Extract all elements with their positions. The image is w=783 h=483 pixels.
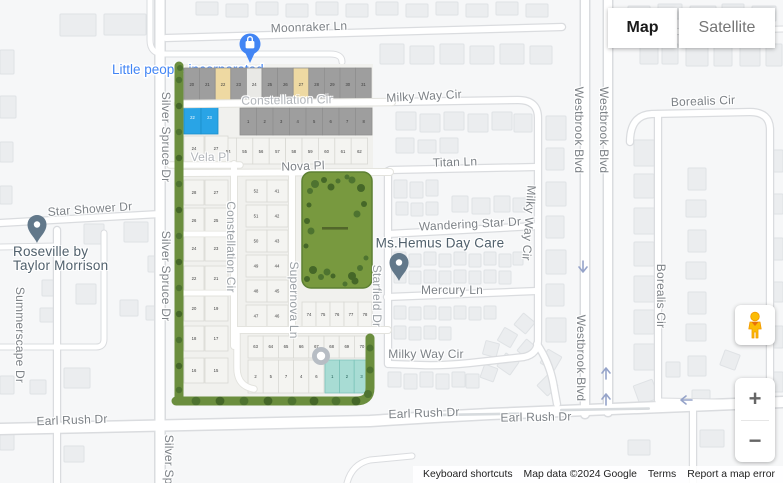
building xyxy=(396,138,414,153)
lot-number: 70 xyxy=(360,344,365,349)
building xyxy=(420,372,433,387)
tree-icon xyxy=(357,184,365,192)
building xyxy=(500,44,524,64)
building xyxy=(492,112,512,130)
building xyxy=(440,44,464,64)
building xyxy=(634,208,656,234)
building xyxy=(466,4,488,17)
building xyxy=(454,306,466,319)
tree-icon xyxy=(308,228,315,235)
tree-icon xyxy=(304,218,310,224)
tree-icon xyxy=(176,181,182,187)
building xyxy=(484,306,496,319)
lot-number: 24 xyxy=(192,146,197,151)
lot-number: 51 xyxy=(254,214,259,219)
lot-number: 25 xyxy=(214,218,219,223)
building xyxy=(396,202,408,215)
lot-number: 66 xyxy=(299,344,304,349)
building xyxy=(546,148,564,170)
lot-number: 64 xyxy=(268,344,273,349)
lot-number: 49 xyxy=(254,264,259,269)
tree-icon xyxy=(176,155,182,161)
tree-icon xyxy=(309,266,317,274)
building xyxy=(634,140,656,166)
building xyxy=(526,4,548,17)
lot-number: 61 xyxy=(341,149,346,154)
building xyxy=(499,271,511,284)
lot-number: 58 xyxy=(291,149,296,154)
lot-number: 50 xyxy=(254,239,259,244)
building xyxy=(472,198,490,214)
building xyxy=(452,196,468,212)
lot-number: 27 xyxy=(299,82,304,87)
building xyxy=(124,222,148,242)
tree-icon xyxy=(240,397,249,406)
building xyxy=(466,374,479,388)
lot-number: 76 xyxy=(335,312,340,317)
building xyxy=(546,216,564,238)
building xyxy=(60,14,96,36)
building xyxy=(484,252,496,265)
building xyxy=(286,4,308,17)
tree-icon xyxy=(361,201,367,207)
tree-icon xyxy=(367,367,374,374)
lot-number: 77 xyxy=(349,312,354,317)
building xyxy=(439,271,451,284)
building xyxy=(409,327,421,340)
building xyxy=(546,182,566,206)
building xyxy=(256,2,278,15)
building xyxy=(424,252,436,265)
lot-number: 25 xyxy=(267,82,272,87)
building xyxy=(418,140,436,153)
building xyxy=(688,292,706,314)
tree-icon xyxy=(176,311,182,317)
lot-number: 24 xyxy=(192,246,197,251)
tree-icon xyxy=(310,397,319,406)
lot-number: 20 xyxy=(192,306,197,311)
building xyxy=(380,44,404,64)
lot-number: 15 xyxy=(214,368,219,373)
building xyxy=(64,368,90,388)
building xyxy=(452,372,465,387)
attribution-bar: Keyboard shortcuts Map data ©2024 Google… xyxy=(413,466,783,483)
lot-number: 26 xyxy=(283,82,288,87)
tree-icon xyxy=(176,207,182,213)
lot-number: 68 xyxy=(329,344,334,349)
tree-icon xyxy=(331,274,336,279)
tree-icon xyxy=(352,397,361,406)
lot-number: 20 xyxy=(189,82,194,87)
lot-number: 78 xyxy=(363,312,368,317)
tree-icon xyxy=(264,397,273,406)
building xyxy=(634,242,654,266)
tree-icon xyxy=(367,345,374,352)
building xyxy=(120,300,138,316)
building xyxy=(454,270,466,283)
tree-icon xyxy=(176,259,182,265)
building xyxy=(409,271,421,284)
tree-icon xyxy=(176,103,182,109)
lot-number: 19 xyxy=(214,306,219,311)
tree-icon xyxy=(357,265,363,271)
building xyxy=(0,376,14,394)
building xyxy=(196,2,218,15)
building xyxy=(469,271,481,284)
tree-icon xyxy=(176,285,182,291)
building xyxy=(426,202,438,215)
lot-number: 63 xyxy=(253,344,258,349)
building xyxy=(444,112,464,130)
lot-number: 22 xyxy=(192,276,197,281)
tree-icon xyxy=(336,179,341,184)
building xyxy=(628,440,650,455)
building xyxy=(700,430,724,447)
building xyxy=(499,254,511,267)
lot-number: 69 xyxy=(344,344,349,349)
lot-number: 27 xyxy=(214,190,219,195)
building xyxy=(104,14,146,35)
building xyxy=(530,46,552,64)
building xyxy=(494,196,510,212)
building xyxy=(406,4,428,17)
lot-number: 55 xyxy=(242,149,247,154)
building xyxy=(546,284,564,306)
building xyxy=(546,250,566,274)
lot-number: 74 xyxy=(307,312,312,317)
building xyxy=(454,252,466,265)
building xyxy=(634,310,654,334)
building xyxy=(376,2,398,15)
tree-icon xyxy=(192,397,201,406)
map-data-text: Map data ©2024 Google xyxy=(524,469,637,480)
lot-number: 41 xyxy=(275,189,280,194)
building xyxy=(439,307,451,320)
building xyxy=(634,276,656,302)
lot-number: 59 xyxy=(308,149,313,154)
building xyxy=(64,446,84,462)
lot-number: 57 xyxy=(275,149,280,154)
tree-icon xyxy=(307,188,313,194)
building xyxy=(634,344,656,370)
building xyxy=(424,326,436,339)
lot-number: 62 xyxy=(357,149,362,154)
map-view-button[interactable]: Map xyxy=(608,8,677,48)
building xyxy=(546,318,566,342)
building xyxy=(688,356,706,376)
building xyxy=(420,114,440,132)
building xyxy=(0,50,14,74)
lot-number: 23 xyxy=(207,115,212,120)
terms-link[interactable]: Terms xyxy=(648,469,676,480)
lot-number: 22 xyxy=(190,115,195,120)
park-tiny-label xyxy=(322,227,348,230)
lot-number: 24 xyxy=(252,82,257,87)
satellite-view-button[interactable]: Satellite xyxy=(679,8,775,48)
lot-number: 21 xyxy=(205,82,210,87)
tree-icon xyxy=(321,177,327,183)
tree-icon xyxy=(332,397,341,406)
tank-circle xyxy=(312,347,330,365)
tree-icon xyxy=(307,203,312,208)
building xyxy=(440,138,458,153)
lot-number: 28 xyxy=(192,190,197,195)
lot-number: 46 xyxy=(275,314,280,319)
building xyxy=(426,180,438,196)
building xyxy=(30,380,46,394)
building xyxy=(686,262,706,279)
map-canvas[interactable]: Little people incorporated 2021222324252… xyxy=(0,0,783,483)
lot-number: 56 xyxy=(259,149,264,154)
building xyxy=(346,4,368,17)
tree-icon xyxy=(304,244,309,249)
tree-icon xyxy=(364,256,369,261)
building xyxy=(409,254,421,267)
building xyxy=(388,372,401,387)
lot-number: 27 xyxy=(214,146,219,151)
building xyxy=(686,200,706,217)
building xyxy=(404,374,417,389)
tree-icon xyxy=(176,387,182,393)
tree-icon xyxy=(176,337,182,343)
lot-number: 31 xyxy=(361,82,366,87)
lot-number: 26 xyxy=(192,218,197,223)
tree-icon xyxy=(304,276,310,282)
tree-icon xyxy=(364,390,372,398)
report-error-link[interactable]: Report a map error xyxy=(687,469,775,480)
lot-number: 48 xyxy=(254,289,259,294)
tree-icon xyxy=(354,211,361,218)
lot-number: 65 xyxy=(284,344,289,349)
building xyxy=(470,46,494,64)
building xyxy=(513,252,523,265)
building xyxy=(436,374,449,389)
building xyxy=(410,46,434,64)
lot-number: 29 xyxy=(330,82,335,87)
tree-icon xyxy=(177,65,183,71)
zoom-in-button[interactable]: + xyxy=(735,379,775,420)
zoom-out-button[interactable]: − xyxy=(735,421,775,462)
building xyxy=(394,180,407,198)
pegman-button[interactable] xyxy=(735,305,775,345)
building xyxy=(686,324,706,341)
tree-icon xyxy=(352,278,359,285)
building xyxy=(469,307,481,320)
building xyxy=(0,142,13,162)
lot-number: 43 xyxy=(275,239,280,244)
lot-number: 22 xyxy=(221,82,226,87)
building xyxy=(468,114,488,132)
lot-number: 42 xyxy=(275,214,280,219)
lot-number: 28 xyxy=(314,82,319,87)
tree-icon xyxy=(324,269,331,276)
building xyxy=(394,306,406,319)
lot-number: 23 xyxy=(236,82,241,87)
zoom-control: + − xyxy=(735,378,775,462)
building xyxy=(666,362,680,377)
building xyxy=(634,174,654,198)
lot-number: 18 xyxy=(192,336,197,341)
lot-number: 52 xyxy=(254,189,259,194)
lot-number: 21 xyxy=(214,276,219,281)
building xyxy=(76,284,96,304)
lot-number: 60 xyxy=(324,149,329,154)
building xyxy=(396,112,416,130)
building xyxy=(410,182,423,198)
building xyxy=(409,307,421,320)
building xyxy=(546,116,566,140)
tree-icon xyxy=(288,397,297,406)
building xyxy=(688,230,706,252)
building xyxy=(436,2,458,15)
lot-number: 17 xyxy=(214,336,219,341)
tree-icon xyxy=(176,129,182,135)
tree-icon xyxy=(176,363,182,369)
map-svg: Little people incorporated 2021222324252… xyxy=(0,0,783,483)
tree-icon xyxy=(345,175,350,180)
lot-number: 30 xyxy=(345,82,350,87)
lot-number: 54 xyxy=(226,149,231,154)
building xyxy=(424,270,436,283)
building xyxy=(0,186,12,204)
building xyxy=(316,2,338,15)
building xyxy=(226,4,248,17)
building xyxy=(514,114,532,132)
building xyxy=(484,270,496,283)
lot-number: 23 xyxy=(214,246,219,251)
tree-icon xyxy=(311,180,319,188)
building xyxy=(482,340,499,357)
tree-icon xyxy=(328,184,335,191)
lot-number: 44 xyxy=(275,264,280,269)
building xyxy=(439,254,451,267)
tree-icon xyxy=(176,233,182,239)
tree-icon xyxy=(216,397,225,406)
building xyxy=(439,327,451,340)
building xyxy=(0,96,16,118)
tree-icon xyxy=(176,77,182,83)
pegman-icon xyxy=(742,310,768,340)
building xyxy=(496,2,518,15)
building xyxy=(688,168,706,190)
lot-number: 16 xyxy=(192,368,197,373)
lot-number: 47 xyxy=(254,314,259,319)
tree-icon xyxy=(349,177,356,184)
lot-number: 75 xyxy=(321,312,326,317)
building xyxy=(394,326,406,339)
tree-icon xyxy=(318,274,324,280)
tree-icon xyxy=(343,282,348,287)
lot-number: 45 xyxy=(275,289,280,294)
keyboard-shortcuts-link[interactable]: Keyboard shortcuts xyxy=(423,469,513,480)
building xyxy=(411,203,423,216)
building xyxy=(513,198,526,212)
building xyxy=(469,254,481,267)
building xyxy=(424,306,436,319)
